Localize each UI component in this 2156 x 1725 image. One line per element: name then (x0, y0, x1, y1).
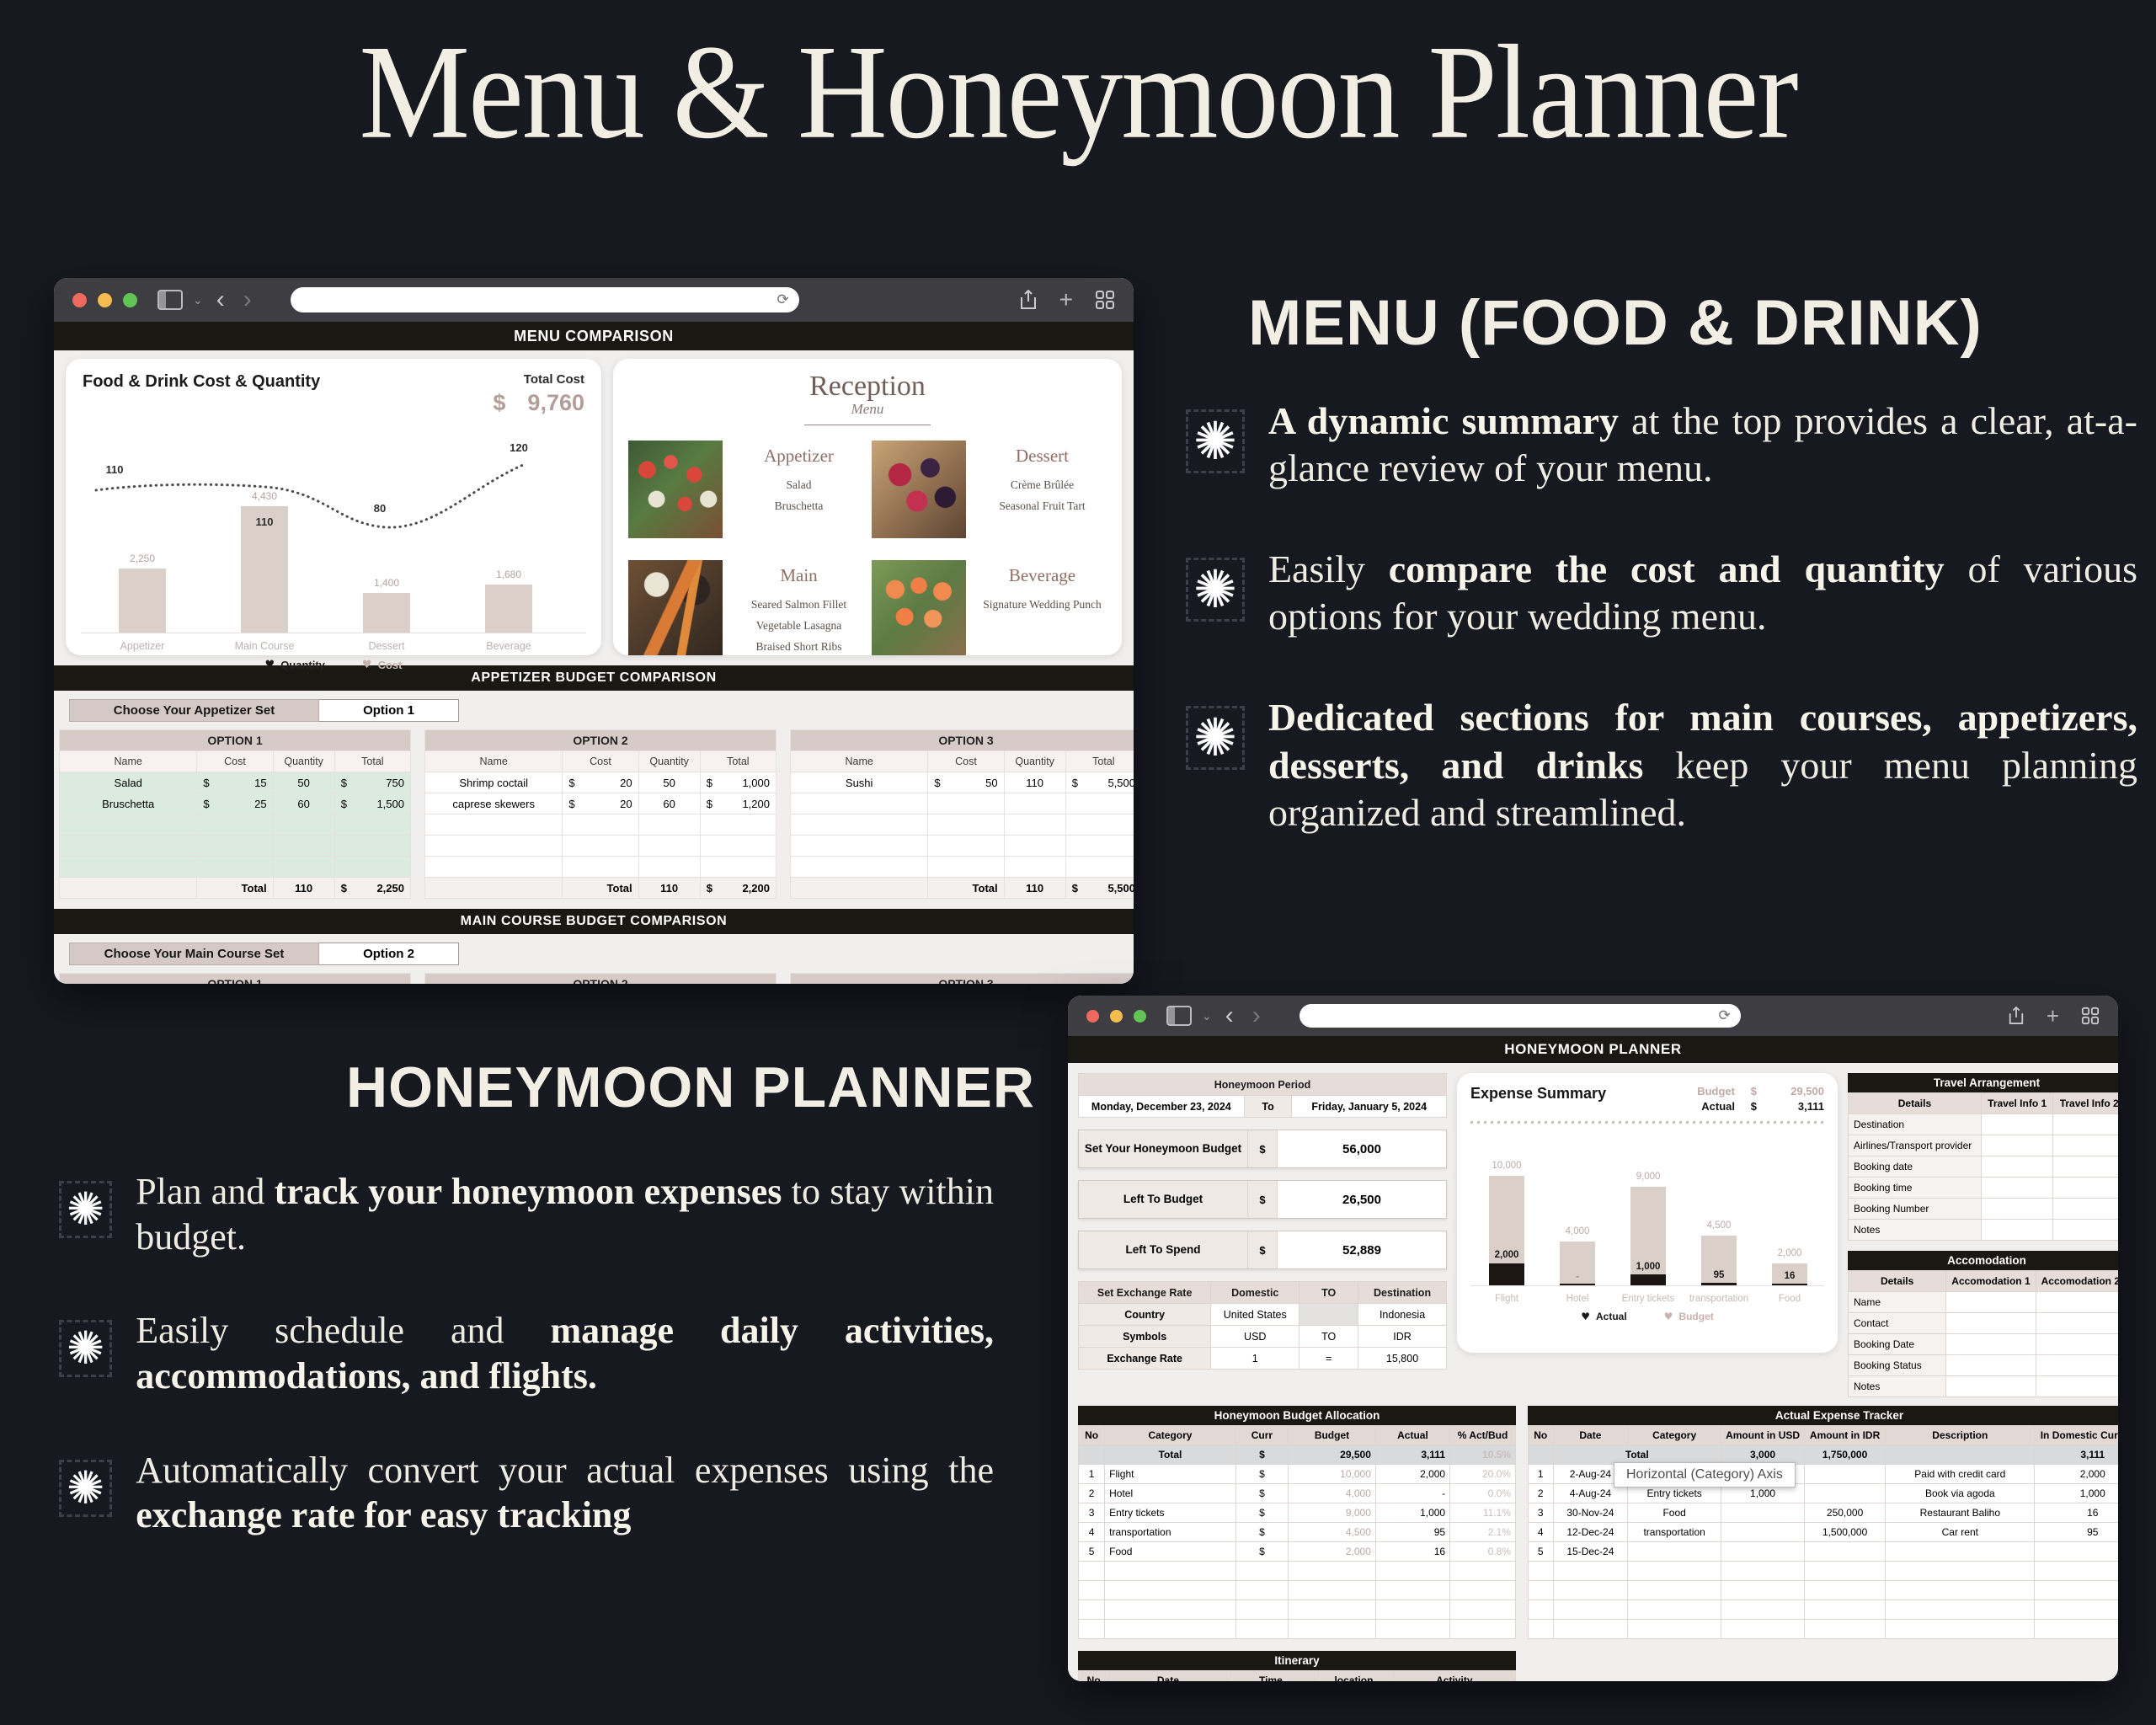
kpi-currency: $ (1247, 1231, 1277, 1268)
row-label: Exchange Rate (1079, 1348, 1211, 1370)
option-title: OPTION 3 (791, 730, 1134, 751)
cost-quantity-chart-card: Food & Drink Cost & Quantity Total Cost … (66, 359, 601, 655)
chart-baseline (81, 633, 586, 633)
actual-value-label: 2,000 (1495, 1250, 1519, 1260)
cell: = (1299, 1348, 1358, 1370)
bar-dessert (363, 593, 410, 633)
main-option3-table: OPTION 3 Name Cost Quantity Total (790, 973, 1134, 984)
reception-main: Main Seared Salmon Fillet Vegetable Lasa… (628, 560, 863, 655)
cell[interactable]: IDR (1358, 1326, 1447, 1348)
table-row: Set Exchange Rate Domestic TO Destinatio… (1079, 1282, 1447, 1304)
currency: $ (1743, 1100, 1757, 1113)
section-name: Dessert (978, 446, 1107, 467)
bullet-text: Plan and track your honeymoon expenses t… (136, 1169, 994, 1259)
total-qty: 110 (273, 878, 334, 899)
table-row[interactable]: Sushi $50 110 $5,500 (791, 772, 1134, 793)
total-amount: 5,500 (1107, 882, 1134, 895)
legend-quantity-label: Quantity (280, 659, 325, 671)
menu-browser-window: ⌄ ‹ › ⟳ + MENU COMPARISON Food & Drink C… (54, 278, 1134, 984)
currency: $ (707, 777, 712, 789)
table-row[interactable]: caprese skewers $20 60 $1,200 (425, 793, 776, 814)
period-to: To (1244, 1096, 1292, 1118)
chart-legend: ♥ Quantity ♥ Cost (66, 659, 601, 671)
cell[interactable] (2053, 1114, 2118, 1135)
column-headers: Name Cost Quantity Total (791, 751, 1134, 772)
cell[interactable] (1946, 1292, 2036, 1313)
cell[interactable] (1946, 1355, 2036, 1376)
kpi-currency: $ (1247, 1181, 1277, 1218)
total-cost-block: Total Cost $ 9,760 (493, 372, 584, 416)
empty-row (60, 857, 411, 878)
address-bar[interactable]: ⟳ (1299, 1004, 1741, 1028)
axis-tooltip[interactable]: Horizontal (Category) Axis (1614, 1462, 1796, 1487)
beverage-text: Beverage Signature Wedding Punch (978, 560, 1107, 616)
cost-quantity-plot: 2,250 4,430 1,400 1,680 110 110 80 120 (81, 438, 586, 633)
col-accommodation-1: Accomodation 1 (1946, 1271, 2036, 1292)
itinerary-table: No Date Time location Activity 124-May-2… (1078, 1670, 1516, 1681)
cost-value: 20 (620, 798, 632, 810)
quantity-label: 110 (256, 515, 274, 528)
cell[interactable]: 1 (1211, 1348, 1299, 1370)
col-accommodation-2: Accomodation 2 (2036, 1271, 2118, 1292)
exchange-header: Destination (1358, 1282, 1447, 1304)
budget-value-label: 10,000 (1492, 1161, 1521, 1171)
expense-legend: ♥ Actual ♥ Budget (1470, 1311, 1824, 1322)
tracker-block: Actual Expense Tracker No Date Category … (1528, 1406, 2118, 1639)
travel-table: Details Travel Info 1 Travel Info 2 Dest… (1848, 1092, 2118, 1241)
cell[interactable] (2053, 1156, 2118, 1178)
x-axis-label: transportation (1689, 1294, 1748, 1304)
empty-row (1079, 1600, 1516, 1620)
bullet-item: ✺ Easily schedule and manage daily activ… (59, 1308, 994, 1398)
table-row: Name (1849, 1292, 2119, 1313)
browser-titlebar: ⌄ ‹ › ⟳ + (1068, 996, 2118, 1036)
total-label: Total (928, 878, 1004, 899)
beverage-photo (872, 560, 966, 655)
share-icon[interactable] (1019, 290, 1038, 310)
minimize-button[interactable] (98, 293, 112, 307)
x-axis-label: Beverage (486, 640, 531, 652)
x-axis-label: Food (1779, 1294, 1801, 1304)
cell[interactable] (2036, 1376, 2118, 1397)
table-row[interactable]: 1Flight$10,0002,00020.0% (1079, 1465, 1516, 1484)
sidebar-icon[interactable] (1166, 1006, 1192, 1026)
cell[interactable] (2036, 1313, 2118, 1334)
table-row: Booking Status (1849, 1355, 2119, 1376)
honeymoon-bullets: ✺ Plan and track your honeymoon expenses… (59, 1169, 994, 1538)
share-icon[interactable] (2008, 1007, 2025, 1025)
table-row: Country United States Indonesia (1079, 1304, 1447, 1326)
cost-value: 50 (985, 777, 997, 789)
actual-bar-flight (1489, 1263, 1524, 1285)
table-row[interactable]: 4transportation$4,500952.1% (1079, 1523, 1516, 1542)
col-quantity: Quantity (1004, 751, 1065, 772)
section-name: Beverage (978, 565, 1107, 586)
forward-icon[interactable]: › (238, 286, 257, 314)
itinerary-banner: Itinerary (1078, 1651, 1516, 1670)
cell[interactable] (1981, 1135, 2053, 1156)
browser-titlebar: ⌄ ‹ › ⟳ + (54, 278, 1134, 322)
travel-column: Travel Arrangement Details Travel Info 1… (1848, 1073, 2118, 1397)
minimize-button[interactable] (1110, 1010, 1123, 1023)
col-details: Details (1849, 1093, 1982, 1114)
main-course-set-dropdown[interactable]: Option 2 (319, 943, 459, 965)
total-row: Total 110 $2,200 (425, 878, 776, 899)
bullet-item: ✺ A dynamic summary at the top provides … (1186, 398, 2137, 492)
dessert-text: Dessert Crème Brûlée Seasonal Fruit Tart (978, 441, 1107, 517)
reception-subtitle: Menu (613, 401, 1122, 418)
starburst-icon: ✺ (1186, 706, 1245, 770)
cell[interactable]: 15,800 (1358, 1348, 1447, 1370)
starburst-icon: ✺ (59, 1320, 112, 1377)
kpi-budget: Set Your Honeymoon Budget $ 56,000 (1078, 1130, 1447, 1168)
text-pre: Automatically convert your actual expens… (136, 1450, 994, 1491)
text-bold: compare the cost and quantity (1389, 547, 1945, 590)
empty-row (791, 857, 1134, 878)
total-value: 750 (386, 777, 404, 789)
empty-row (1079, 1562, 1516, 1581)
cost-value: 25 (254, 798, 266, 810)
total-label: Total (197, 878, 273, 899)
empty-row (60, 836, 411, 857)
table-row[interactable]: Shrimp coctail $20 50 $1,000 (425, 772, 776, 793)
cell[interactable] (2036, 1334, 2118, 1355)
accommodation-banner: Accomodation (1848, 1251, 2118, 1270)
menu-item: Seared Salmon Fillet (734, 595, 863, 616)
table-row[interactable]: 515-Dec-24 (1529, 1542, 2119, 1562)
main-course-photo (628, 560, 723, 655)
currency: $ (568, 777, 574, 789)
currency-symbol: $ (493, 390, 505, 416)
total-row: Total $ 29,500 3,111 10.5% (1079, 1445, 1516, 1465)
honeymoon-sheet: HONEYMOON PLANNER Honeymoon Period Monda… (1068, 1036, 2118, 1681)
cost-value: 20 (620, 777, 632, 789)
cell[interactable] (1946, 1376, 2036, 1397)
zoom-button[interactable] (1134, 1010, 1146, 1023)
column-headers: No Date Category Amount in USD Amount in… (1529, 1426, 2119, 1445)
starburst-icon: ✺ (1186, 409, 1245, 473)
bullet-item: ✺ Plan and track your honeymoon expenses… (59, 1169, 994, 1259)
actual-bar-hotel (1560, 1284, 1595, 1285)
table-row: Monday, December 23, 2024 To Friday, Jan… (1079, 1096, 1447, 1118)
main-option2-table: OPTION 2 Name Cost Quantity Total Seared… (424, 973, 776, 984)
currency: $ (203, 777, 209, 789)
table-row[interactable]: 330-Nov-24Food250,000Restaurant Baliho16 (1529, 1503, 2119, 1523)
budget-value-label: 2,000 (1778, 1248, 1802, 1258)
menu-item: Salad (734, 475, 863, 496)
new-tab-icon[interactable]: + (1059, 288, 1073, 312)
appetizer-chooser: Choose Your Appetizer Set Option 1 (69, 699, 1134, 722)
table-row: Booking time (1849, 1178, 2119, 1199)
empty-row (791, 836, 1134, 857)
expense-plot: 10,000 4,000 9,000 4,500 2,000 2,000 - 1… (1470, 1124, 1824, 1304)
empty-row (1079, 1620, 1516, 1639)
chevron-down-icon[interactable]: ⌄ (1202, 1009, 1212, 1023)
x-axis-label: Appetizer (120, 640, 165, 652)
cell[interactable] (1981, 1114, 2053, 1135)
cell[interactable]: United States (1211, 1304, 1299, 1326)
expense-totals: Budget $ 29,500 Actual $ 3,111 (1697, 1085, 1824, 1113)
kpi-label: Left To Spend (1079, 1231, 1247, 1268)
reception-beverage: Beverage Signature Wedding Punch (872, 560, 1107, 655)
exchange-header: Set Exchange Rate (1079, 1282, 1211, 1304)
appetizer-set-dropdown[interactable]: Option 1 (319, 699, 459, 722)
table-row: Exchange Rate 1 = 15,800 (1079, 1348, 1447, 1370)
heart-icon: ♥ (362, 659, 372, 671)
cell[interactable] (2053, 1178, 2118, 1199)
honeymoon-section-heading: HONEYMOON PLANNER (269, 1055, 1112, 1120)
actual-total: 3,111 (1765, 1100, 1824, 1113)
honeymoon-browser-window: ⌄ ‹ › ⟳ + HONEYMOON PLANNER Honeymoon Pe… (1068, 996, 2118, 1681)
actual-bar-food (1772, 1284, 1807, 1285)
appetizer-option1-table: OPTION 1 Name Cost Quantity Total Salad … (59, 729, 411, 899)
cards-row: Food & Drink Cost & Quantity Total Cost … (54, 350, 1134, 655)
empty-row (1529, 1620, 2119, 1639)
period-start[interactable]: Monday, December 23, 2024 (1079, 1096, 1245, 1118)
quantity-line (81, 446, 569, 590)
cell[interactable] (2053, 1199, 2118, 1220)
table-row[interactable]: Salad $15 50 $750 (60, 772, 411, 793)
page-title: Menu & Honeymoon Planner (0, 15, 2156, 170)
back-icon[interactable]: ‹ (1220, 1001, 1239, 1030)
total-row: Total 110 $2,250 (60, 878, 411, 899)
close-button[interactable] (72, 293, 87, 307)
cell[interactable] (2036, 1292, 2118, 1313)
honeymoon-banner: HONEYMOON PLANNER (1068, 1036, 2118, 1063)
expense-summary-column: Expense Summary Budget $ 29,500 Actual $… (1457, 1073, 1838, 1397)
legend-actual: ♥ Actual (1581, 1311, 1626, 1322)
allocation-banner: Honeymoon Budget Allocation (1078, 1406, 1516, 1425)
titlebar-actions: + (1019, 288, 1115, 312)
menu-item: Signature Wedding Punch (978, 595, 1107, 616)
close-button[interactable] (1086, 1010, 1099, 1023)
cell[interactable] (2036, 1355, 2118, 1376)
cell[interactable]: Indonesia (1358, 1304, 1447, 1326)
chooser-label: Choose Your Main Course Set (69, 943, 319, 965)
total-qty: 110 (638, 878, 700, 899)
cost-value: 15 (254, 777, 266, 789)
chart-title: Food & Drink Cost & Quantity (83, 372, 320, 392)
menu-comparison-banner: MENU COMPARISON (54, 322, 1134, 350)
column-headers: No Date Time location Activity (1079, 1671, 1516, 1682)
allocation-block: Honeymoon Budget Allocation No Category … (1078, 1406, 1516, 1639)
column-headers: Name Cost Quantity Total (60, 751, 411, 772)
page-canvas: Menu & Honeymoon Planner ⌄ ‹ › ⟳ + MENU … (0, 0, 2156, 1725)
column-headers: Details Accomodation 1 Accomodation 2 (1849, 1271, 2119, 1292)
actual-value-label: - (1576, 1272, 1579, 1282)
currency: $ (341, 798, 347, 810)
expense-summary-card: Expense Summary Budget $ 29,500 Actual $… (1457, 1073, 1838, 1353)
empty-row (60, 814, 411, 836)
table-row: Booking date (1849, 1156, 2119, 1178)
empty-row (425, 857, 776, 878)
kpi-left-to-budget: Left To Budget $ 26,500 (1078, 1180, 1447, 1219)
tab-overview-icon[interactable] (1095, 290, 1115, 310)
option-title: OPTION 1 (60, 730, 411, 751)
empty-row (791, 814, 1134, 836)
back-icon[interactable]: ‹ (211, 286, 230, 314)
traffic-lights (1086, 1010, 1146, 1023)
cell: TO (1299, 1326, 1358, 1348)
menu-item: Braised Short Ribs (734, 637, 863, 655)
menu-bullets: ✺ A dynamic summary at the top provides … (1186, 398, 2137, 836)
cell[interactable] (1946, 1313, 2036, 1334)
currency: $ (568, 798, 574, 810)
total-value: 5,500 (1107, 777, 1134, 789)
kpi-value: 52,889 (1277, 1231, 1446, 1268)
table-row[interactable]: 3Entry tickets$9,0001,00011.1% (1079, 1503, 1516, 1523)
col-quantity: Quantity (638, 751, 700, 772)
menu-section-heading: MENU (FOOD & DRINK) (1248, 286, 1983, 360)
empty-row (1529, 1581, 2119, 1600)
sidebar-icon[interactable] (157, 290, 183, 310)
chart-header: Food & Drink Cost & Quantity Total Cost … (66, 359, 601, 416)
table-row: Airlines/Transport provider (1849, 1135, 2119, 1156)
chevron-down-icon[interactable]: ⌄ (193, 293, 203, 307)
period-table: Honeymoon Period Monday, December 23, 20… (1078, 1073, 1447, 1118)
currency: $ (341, 882, 347, 895)
bullet-item: ✺ Easily compare the cost and quantity o… (1186, 546, 2137, 640)
option-title: OPTION 3 (791, 974, 1134, 985)
kpi-value[interactable]: 56,000 (1277, 1130, 1446, 1167)
table-row: Symbols USD TO IDR (1079, 1326, 1447, 1348)
reception-title: Reception (613, 371, 1122, 403)
period-header: Honeymoon Period (1079, 1074, 1447, 1096)
tracker-table: No Date Category Amount in USD Amount in… (1528, 1425, 2118, 1639)
text-pre: Easily (1268, 547, 1389, 590)
total-cost-label: Total Cost (493, 372, 584, 387)
col-quantity: Quantity (273, 751, 334, 772)
menu-sheet: MENU COMPARISON Food & Drink Cost & Quan… (54, 322, 1134, 984)
column-headers: Name Cost Quantity Total (425, 751, 776, 772)
cell[interactable] (1981, 1199, 2053, 1220)
cell[interactable]: USD (1211, 1326, 1299, 1348)
legend-cost: ♥ Cost (362, 659, 403, 671)
col-travel-info-2: Travel Info 2 (2053, 1093, 2118, 1114)
table-row: Destination (1849, 1114, 2119, 1135)
column-headers: Details Travel Info 1 Travel Info 2 (1849, 1093, 2119, 1114)
actual-bar-entry-tickets (1630, 1274, 1666, 1285)
reception-appetizer: Appetizer Salad Bruschetta (628, 441, 863, 538)
empty-row (791, 793, 1134, 814)
table-row[interactable]: 2Hotel$4,000-0.0% (1079, 1484, 1516, 1503)
bullet-text: Automatically convert your actual expens… (136, 1448, 994, 1538)
table-row: Notes (1849, 1220, 2119, 1241)
total-cost-number: 9,760 (527, 390, 584, 416)
text-bold: A dynamic summary (1268, 399, 1619, 442)
kpi-value: 26,500 (1277, 1181, 1446, 1218)
reception-dessert: Dessert Crème Brûlée Seasonal Fruit Tart (872, 441, 1107, 538)
menu-item: Bruschetta (734, 496, 863, 517)
cell (1299, 1304, 1358, 1326)
quantity-label: 120 (510, 441, 528, 454)
total-value: 1,200 (742, 798, 770, 810)
table-row[interactable]: 412-Dec-24transportation1,500,000Car ren… (1529, 1523, 2119, 1542)
col-name: Name (791, 751, 928, 772)
new-tab-icon[interactable]: + (2047, 1005, 2059, 1027)
bullet-text: Easily schedule and manage daily activit… (136, 1308, 994, 1398)
tab-overview-icon[interactable] (2081, 1007, 2100, 1025)
x-axis-label: Hotel (1566, 1294, 1589, 1304)
text-bold: track your honeymoon expenses (275, 1171, 782, 1212)
budget-value-label: 4,500 (1707, 1220, 1732, 1231)
currency: $ (934, 777, 940, 789)
quantity-label: 110 (106, 463, 124, 476)
appetizer-photo (628, 441, 723, 538)
bullet-text: A dynamic summary at the top provides a … (1268, 398, 2137, 492)
col-cost: Cost (563, 751, 638, 772)
reload-icon[interactable]: ⟳ (1718, 1007, 1730, 1024)
actual-value-label: 1,000 (1636, 1262, 1661, 1272)
appetizer-options-row: OPTION 1 Name Cost Quantity Total Salad … (54, 722, 1134, 899)
currency: $ (1743, 1085, 1757, 1097)
cell[interactable] (1981, 1220, 2053, 1241)
actual-label: Actual (1697, 1100, 1735, 1113)
expense-header: Expense Summary Budget $ 29,500 Actual $… (1470, 1085, 1824, 1113)
currency: $ (707, 798, 712, 810)
x-axis-label: Flight (1495, 1294, 1518, 1304)
forward-icon[interactable]: › (1247, 1001, 1266, 1030)
section-name: Appetizer (734, 446, 863, 467)
empty-row (1079, 1581, 1516, 1600)
exchange-header: Domestic (1211, 1282, 1299, 1304)
zoom-button[interactable] (123, 293, 137, 307)
main-course-chooser: Choose Your Main Course Set Option 2 (69, 943, 1134, 965)
cell[interactable] (1981, 1178, 2053, 1199)
legend-quantity: ♥ Quantity (265, 659, 325, 671)
period-end[interactable]: Friday, January 5, 2024 (1292, 1096, 1447, 1118)
cell[interactable] (1946, 1334, 2036, 1355)
table-row: Booking Date (1849, 1334, 2119, 1355)
cell[interactable] (2053, 1135, 2118, 1156)
table-row[interactable]: Bruschetta $25 60 $1,500 (60, 793, 411, 814)
option-title: OPTION 1 (60, 974, 411, 985)
top-grid: Honeymoon Period Monday, December 23, 20… (1068, 1063, 2118, 1397)
kpi-label: Left To Budget (1079, 1181, 1247, 1218)
text-pre: Easily schedule and (136, 1310, 550, 1351)
cell[interactable] (2053, 1220, 2118, 1241)
cell[interactable] (1981, 1156, 2053, 1178)
starburst-icon: ✺ (1186, 558, 1245, 622)
reload-icon[interactable]: ⟳ (776, 291, 788, 308)
appetizer-option2-table: OPTION 2 Name Cost Quantity Total Shrimp… (424, 729, 776, 899)
row-label: Country (1079, 1304, 1211, 1326)
menu-item: Seasonal Fruit Tart (978, 496, 1107, 517)
starburst-icon: ✺ (59, 1181, 112, 1238)
legend-cost-label: Cost (378, 659, 403, 671)
total-value: 1,500 (376, 798, 404, 810)
x-axis-label: Entry tickets (1622, 1294, 1675, 1304)
currency: $ (1072, 882, 1078, 895)
text-pre: Plan and (136, 1171, 274, 1212)
address-bar[interactable]: ⟳ (291, 287, 799, 312)
col-name: Name (425, 751, 563, 772)
empty-row (425, 836, 776, 857)
itinerary-block: Itinerary No Date Time location Activity… (1078, 1651, 1516, 1681)
total-amount: 2,200 (742, 882, 770, 895)
legend-actual-label: Actual (1596, 1311, 1627, 1322)
tracker-banner: Actual Expense Tracker (1528, 1406, 2118, 1425)
total-amount: 2,250 (376, 882, 404, 895)
x-axis-label: Main Course (235, 640, 295, 652)
expense-title: Expense Summary (1470, 1085, 1606, 1113)
budget-column: Honeymoon Period Monday, December 23, 20… (1078, 1073, 1447, 1397)
heart-icon: ♥ (265, 659, 275, 671)
table-row[interactable]: 5Food$2,000160.8% (1079, 1542, 1516, 1562)
col-total: Total (334, 751, 410, 772)
col-travel-info-1: Travel Info 1 (1981, 1093, 2053, 1114)
total-cost-value: $ 9,760 (493, 390, 584, 416)
